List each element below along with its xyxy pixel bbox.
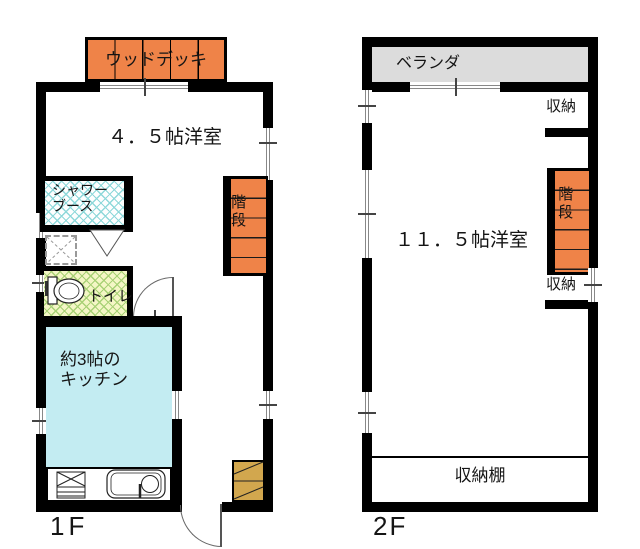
wall-kitchen-right-upper bbox=[172, 316, 182, 391]
toilet-door-leaf bbox=[172, 277, 174, 317]
wall-storage-top bbox=[545, 128, 598, 137]
wall-kitchen-top bbox=[36, 316, 182, 327]
room-label-2f: １１．５帖洋室 bbox=[395, 230, 528, 252]
room-label-1f-living: ４．５帖洋室 bbox=[108, 127, 222, 149]
floor-plan-canvas: ウッドデッキ ４．５帖洋室 シャワー ブース トイレ 約3帖の キッチン 階段 bbox=[0, 0, 640, 549]
entrance-door-arc-icon bbox=[180, 505, 222, 547]
window-1f-right-upper bbox=[263, 128, 273, 180]
storage-shelf-divider bbox=[372, 456, 588, 458]
storage-bottom-label: 収納 bbox=[546, 276, 576, 293]
window-kitchen-right bbox=[172, 391, 182, 419]
window-tick bbox=[455, 78, 457, 96]
kitchen-counter bbox=[46, 467, 172, 502]
storage-shelf-label: 収納棚 bbox=[372, 466, 588, 486]
window-tick bbox=[259, 404, 277, 406]
floor-label-2f: 2F bbox=[373, 512, 407, 542]
kitchen-label-line1: 約3帖の bbox=[60, 350, 128, 370]
toilet-label: トイレ bbox=[88, 288, 133, 305]
window-tick bbox=[358, 105, 376, 107]
kitchen-label-line2: キッチン bbox=[60, 370, 128, 390]
shower-booth-label: シャワー ブース bbox=[52, 182, 108, 214]
stairs-label-1f: 階段 bbox=[229, 194, 246, 254]
window-tick bbox=[144, 78, 146, 96]
window-tick bbox=[358, 412, 376, 414]
storage-top-label: 収納 bbox=[546, 98, 576, 115]
window-tick bbox=[259, 142, 277, 144]
floor-label-1f: 1F bbox=[50, 512, 88, 542]
entrance-door-leaf bbox=[220, 504, 222, 547]
shower-label-line1: シャワー bbox=[52, 182, 108, 198]
wood-deck-label: ウッドデッキ bbox=[105, 50, 207, 70]
window-tick bbox=[358, 213, 376, 215]
washing-machine-pan bbox=[45, 235, 77, 265]
window-tick bbox=[584, 284, 602, 286]
shower-label-line2: ブース bbox=[52, 198, 108, 214]
shoe-cabinet bbox=[232, 460, 265, 502]
veranda: ベランダ bbox=[372, 47, 588, 82]
stairs-label-2f: 階段 bbox=[556, 186, 573, 248]
veranda-label: ベランダ bbox=[372, 55, 460, 73]
wall-kitchen-right-lower bbox=[172, 419, 182, 502]
wood-deck: ウッドデッキ bbox=[85, 37, 227, 82]
kitchen-label: 約3帖の キッチン bbox=[60, 350, 128, 389]
